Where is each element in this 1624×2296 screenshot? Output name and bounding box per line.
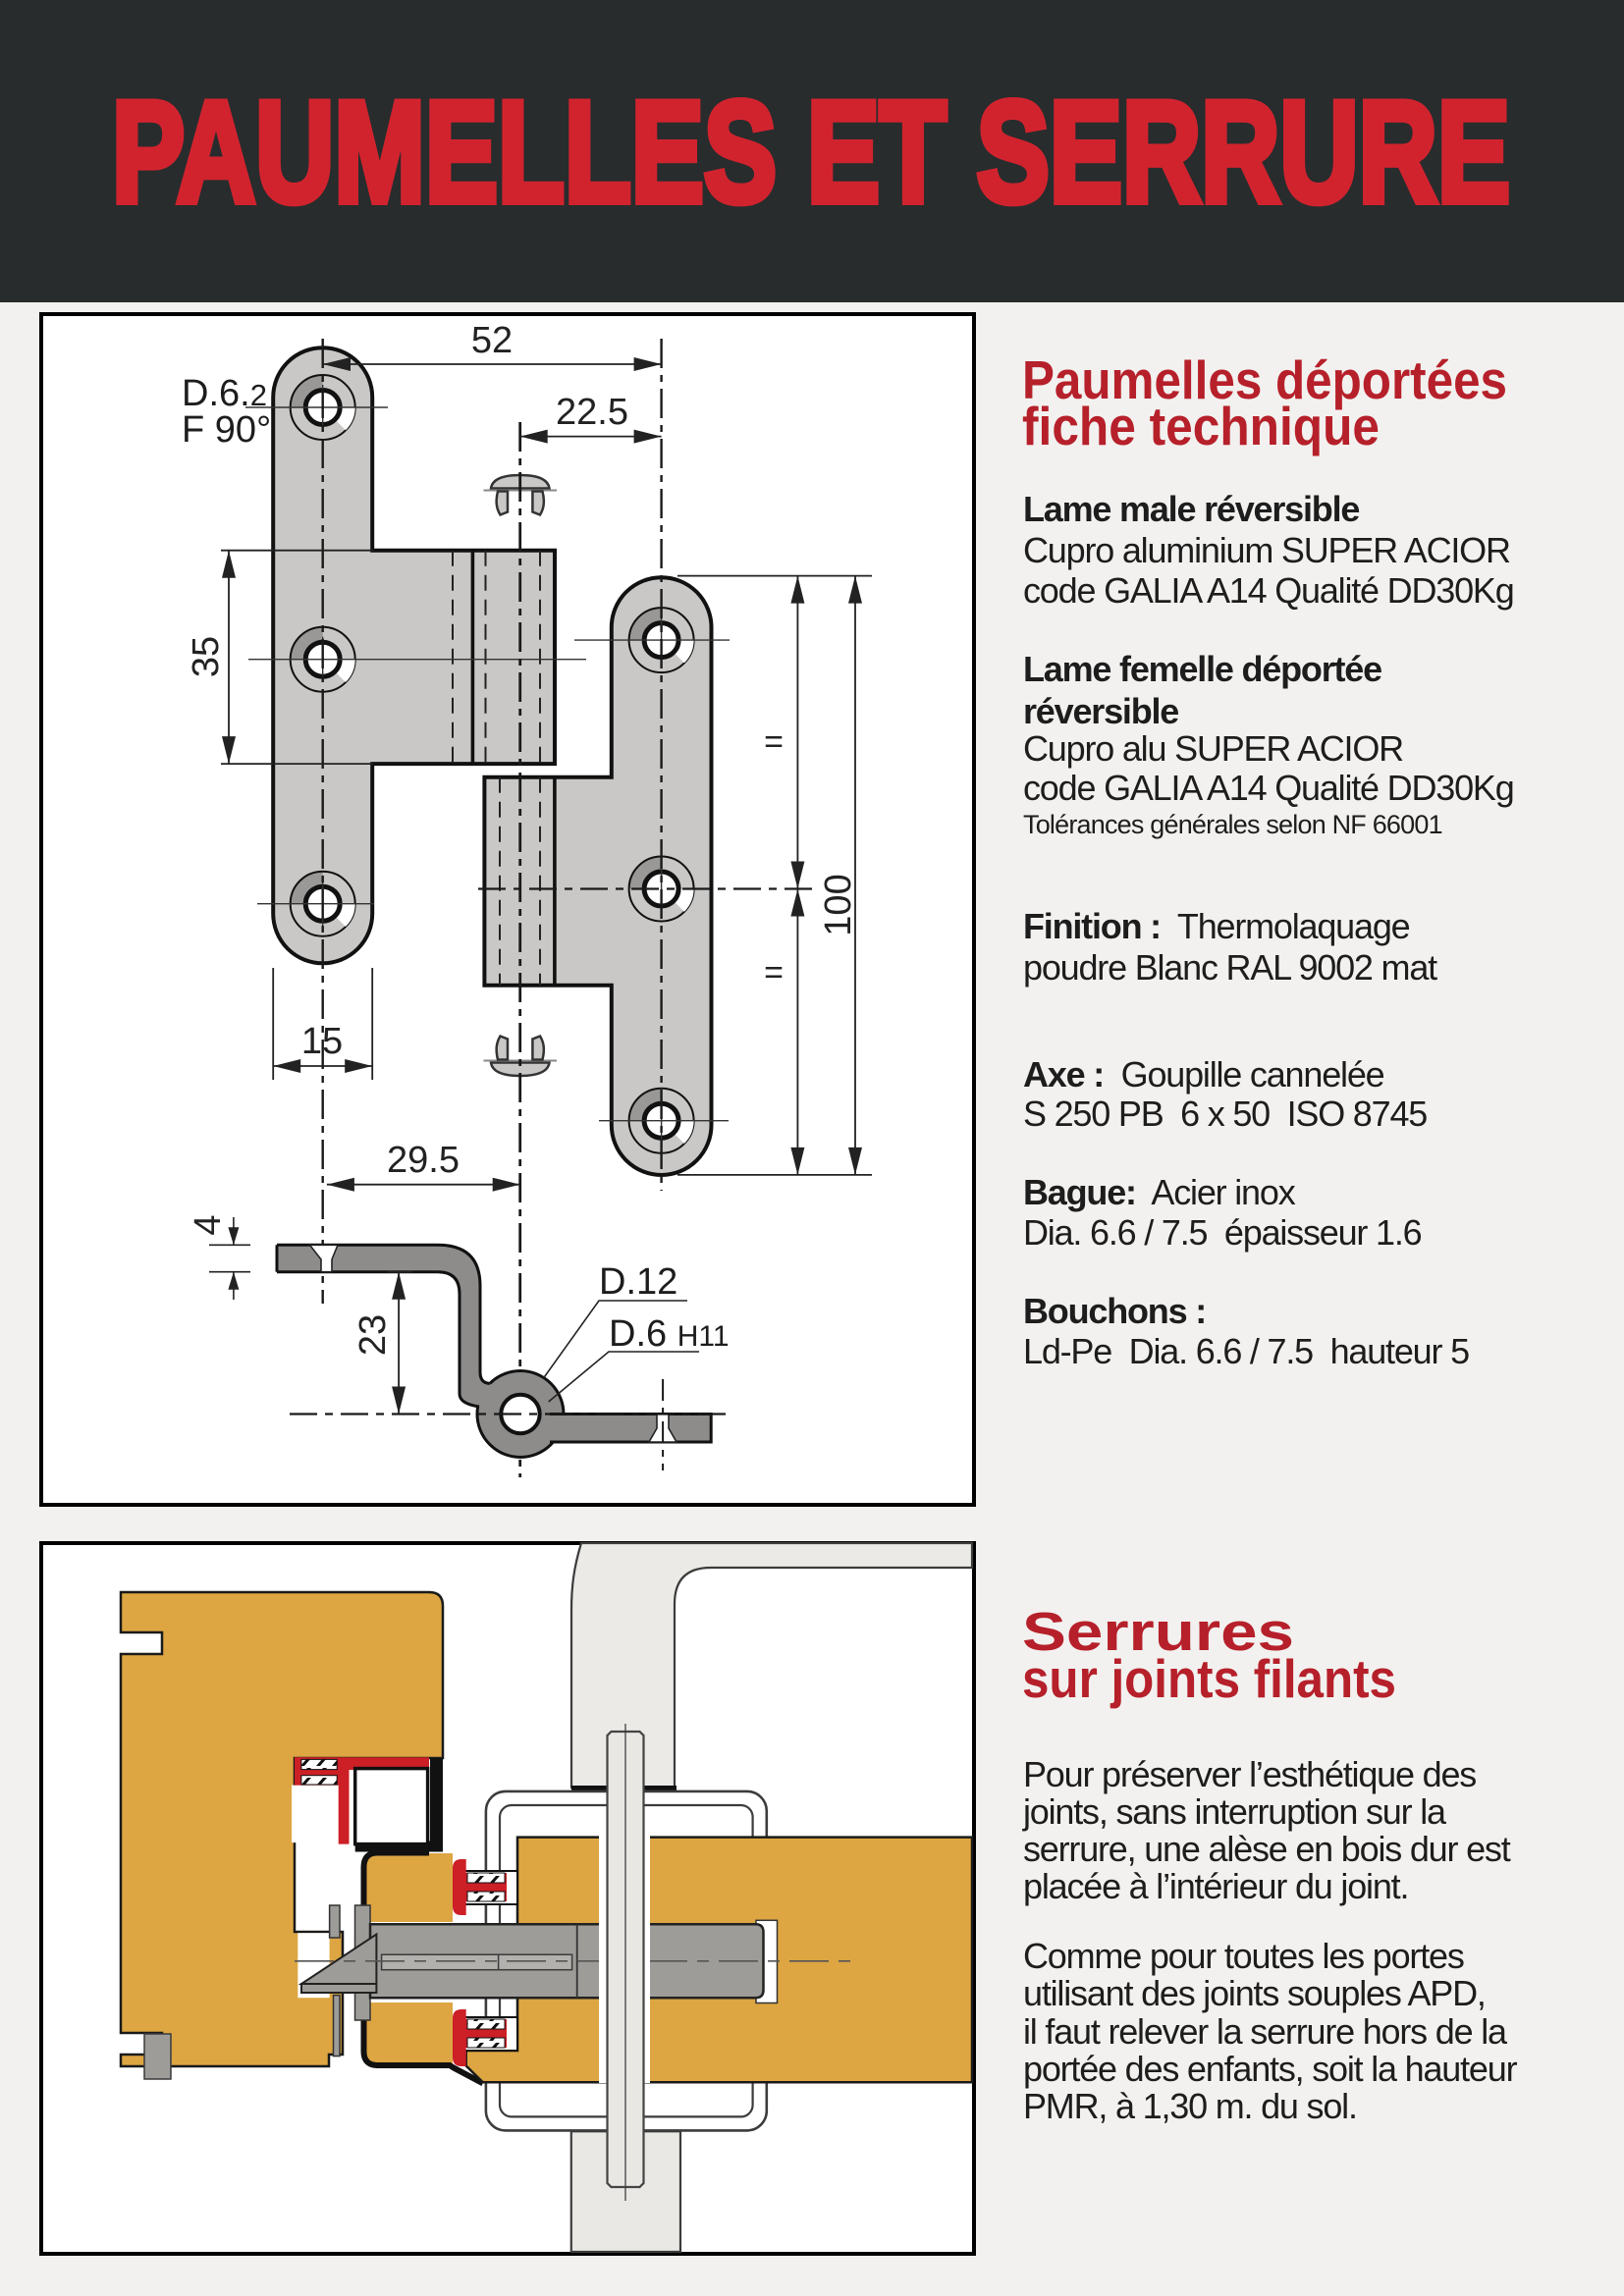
svg-text:Lame male réversible: Lame male réversible	[1023, 489, 1359, 529]
svg-text:29.5: 29.5	[387, 1140, 460, 1181]
svg-text:4: 4	[188, 1214, 229, 1235]
svg-text:Tolérances générales selon NF: Tolérances générales selon NF 66001	[1023, 810, 1442, 839]
svg-text:D.6 H11: D.6 H11	[609, 1313, 730, 1355]
svg-text:portée des enfants, soit la ha: portée des enfants, soit la hauteur	[1023, 2049, 1518, 2089]
svg-text:joints, sans interruption sur: joints, sans interruption sur la	[1022, 1791, 1447, 1832]
svg-text:52: 52	[471, 320, 513, 361]
svg-text:code GALIA A14 Qualité DD30Kg: code GALIA A14 Qualité DD30Kg	[1023, 570, 1514, 611]
svg-text:Cupro aluminium SUPER ACIOR: Cupro aluminium SUPER ACIOR	[1023, 530, 1510, 570]
svg-text:PAUMELLES ET SERRURE: PAUMELLES ET SERRURE	[112, 72, 1510, 232]
svg-text:Bague: Acier inox: Bague: Acier inox	[1023, 1172, 1296, 1212]
svg-text:PMR, à 1,30 m. du sol.: PMR, à 1,30 m. du sol.	[1023, 2086, 1357, 2126]
svg-text:=: =	[764, 954, 784, 991]
svg-text:utilisant des joints souples A: utilisant des joints souples APD,	[1023, 1973, 1486, 2013]
svg-text:Lame femelle déportée: Lame femelle déportée	[1023, 649, 1381, 689]
svg-text:S 250 PB 6 x 50 ISO 8745: S 250 PB 6 x 50 ISO 8745	[1023, 1094, 1427, 1134]
svg-text:Cupro alu SUPER ACIOR: Cupro alu SUPER ACIOR	[1023, 728, 1403, 769]
svg-text:15: 15	[301, 1021, 343, 1062]
svg-text:Axe : Goupille cannelée: Axe : Goupille cannelée	[1023, 1054, 1384, 1095]
svg-text:D.6.2: D.6.2	[182, 373, 267, 414]
svg-text:fiche technique: fiche technique	[1022, 396, 1380, 456]
svg-text:=: =	[764, 723, 784, 761]
svg-text:Pour préserver l’esthétique de: Pour préserver l’esthétique des	[1023, 1754, 1476, 1794]
svg-text:100: 100	[818, 874, 859, 935]
svg-text:sur joints filants: sur joints filants	[1022, 1648, 1396, 1709]
svg-text:serrure, une alèse en bois dur: serrure, une alèse en bois dur est	[1023, 1829, 1511, 1869]
svg-text:réversible: réversible	[1023, 691, 1178, 731]
svg-text:il faut relever la serrure hor: il faut relever la serrure hors de la	[1023, 2011, 1508, 2052]
svg-text:35: 35	[186, 636, 227, 677]
svg-text:23: 23	[352, 1314, 394, 1356]
svg-text:D.12: D.12	[599, 1261, 677, 1303]
svg-text:code GALIA A14 Qualité DD30Kg: code GALIA A14 Qualité DD30Kg	[1023, 768, 1514, 808]
svg-text:Ld-Pe Dia. 6.6 / 7.5 hauteur: Ld-Pe Dia. 6.6 / 7.5 hauteur 5	[1023, 1331, 1469, 1371]
svg-text:Bouchons :: Bouchons :	[1023, 1291, 1206, 1331]
svg-text:Dia. 6.6 / 7.5 épaisseur 1.6: Dia. 6.6 / 7.5 épaisseur 1.6	[1023, 1212, 1422, 1253]
svg-text:placée à l’intérieur du joint.: placée à l’intérieur du joint.	[1023, 1866, 1408, 1906]
svg-text:Comme pour toutes les portes: Comme pour toutes les portes	[1023, 1936, 1464, 1976]
svg-text:Finition : Thermolaquage: Finition : Thermolaquage	[1023, 906, 1410, 946]
svg-text:poudre Blanc RAL 9002 mat: poudre Blanc RAL 9002 mat	[1023, 947, 1437, 988]
svg-text:F 90°: F 90°	[182, 409, 271, 451]
svg-text:22.5: 22.5	[556, 392, 628, 433]
